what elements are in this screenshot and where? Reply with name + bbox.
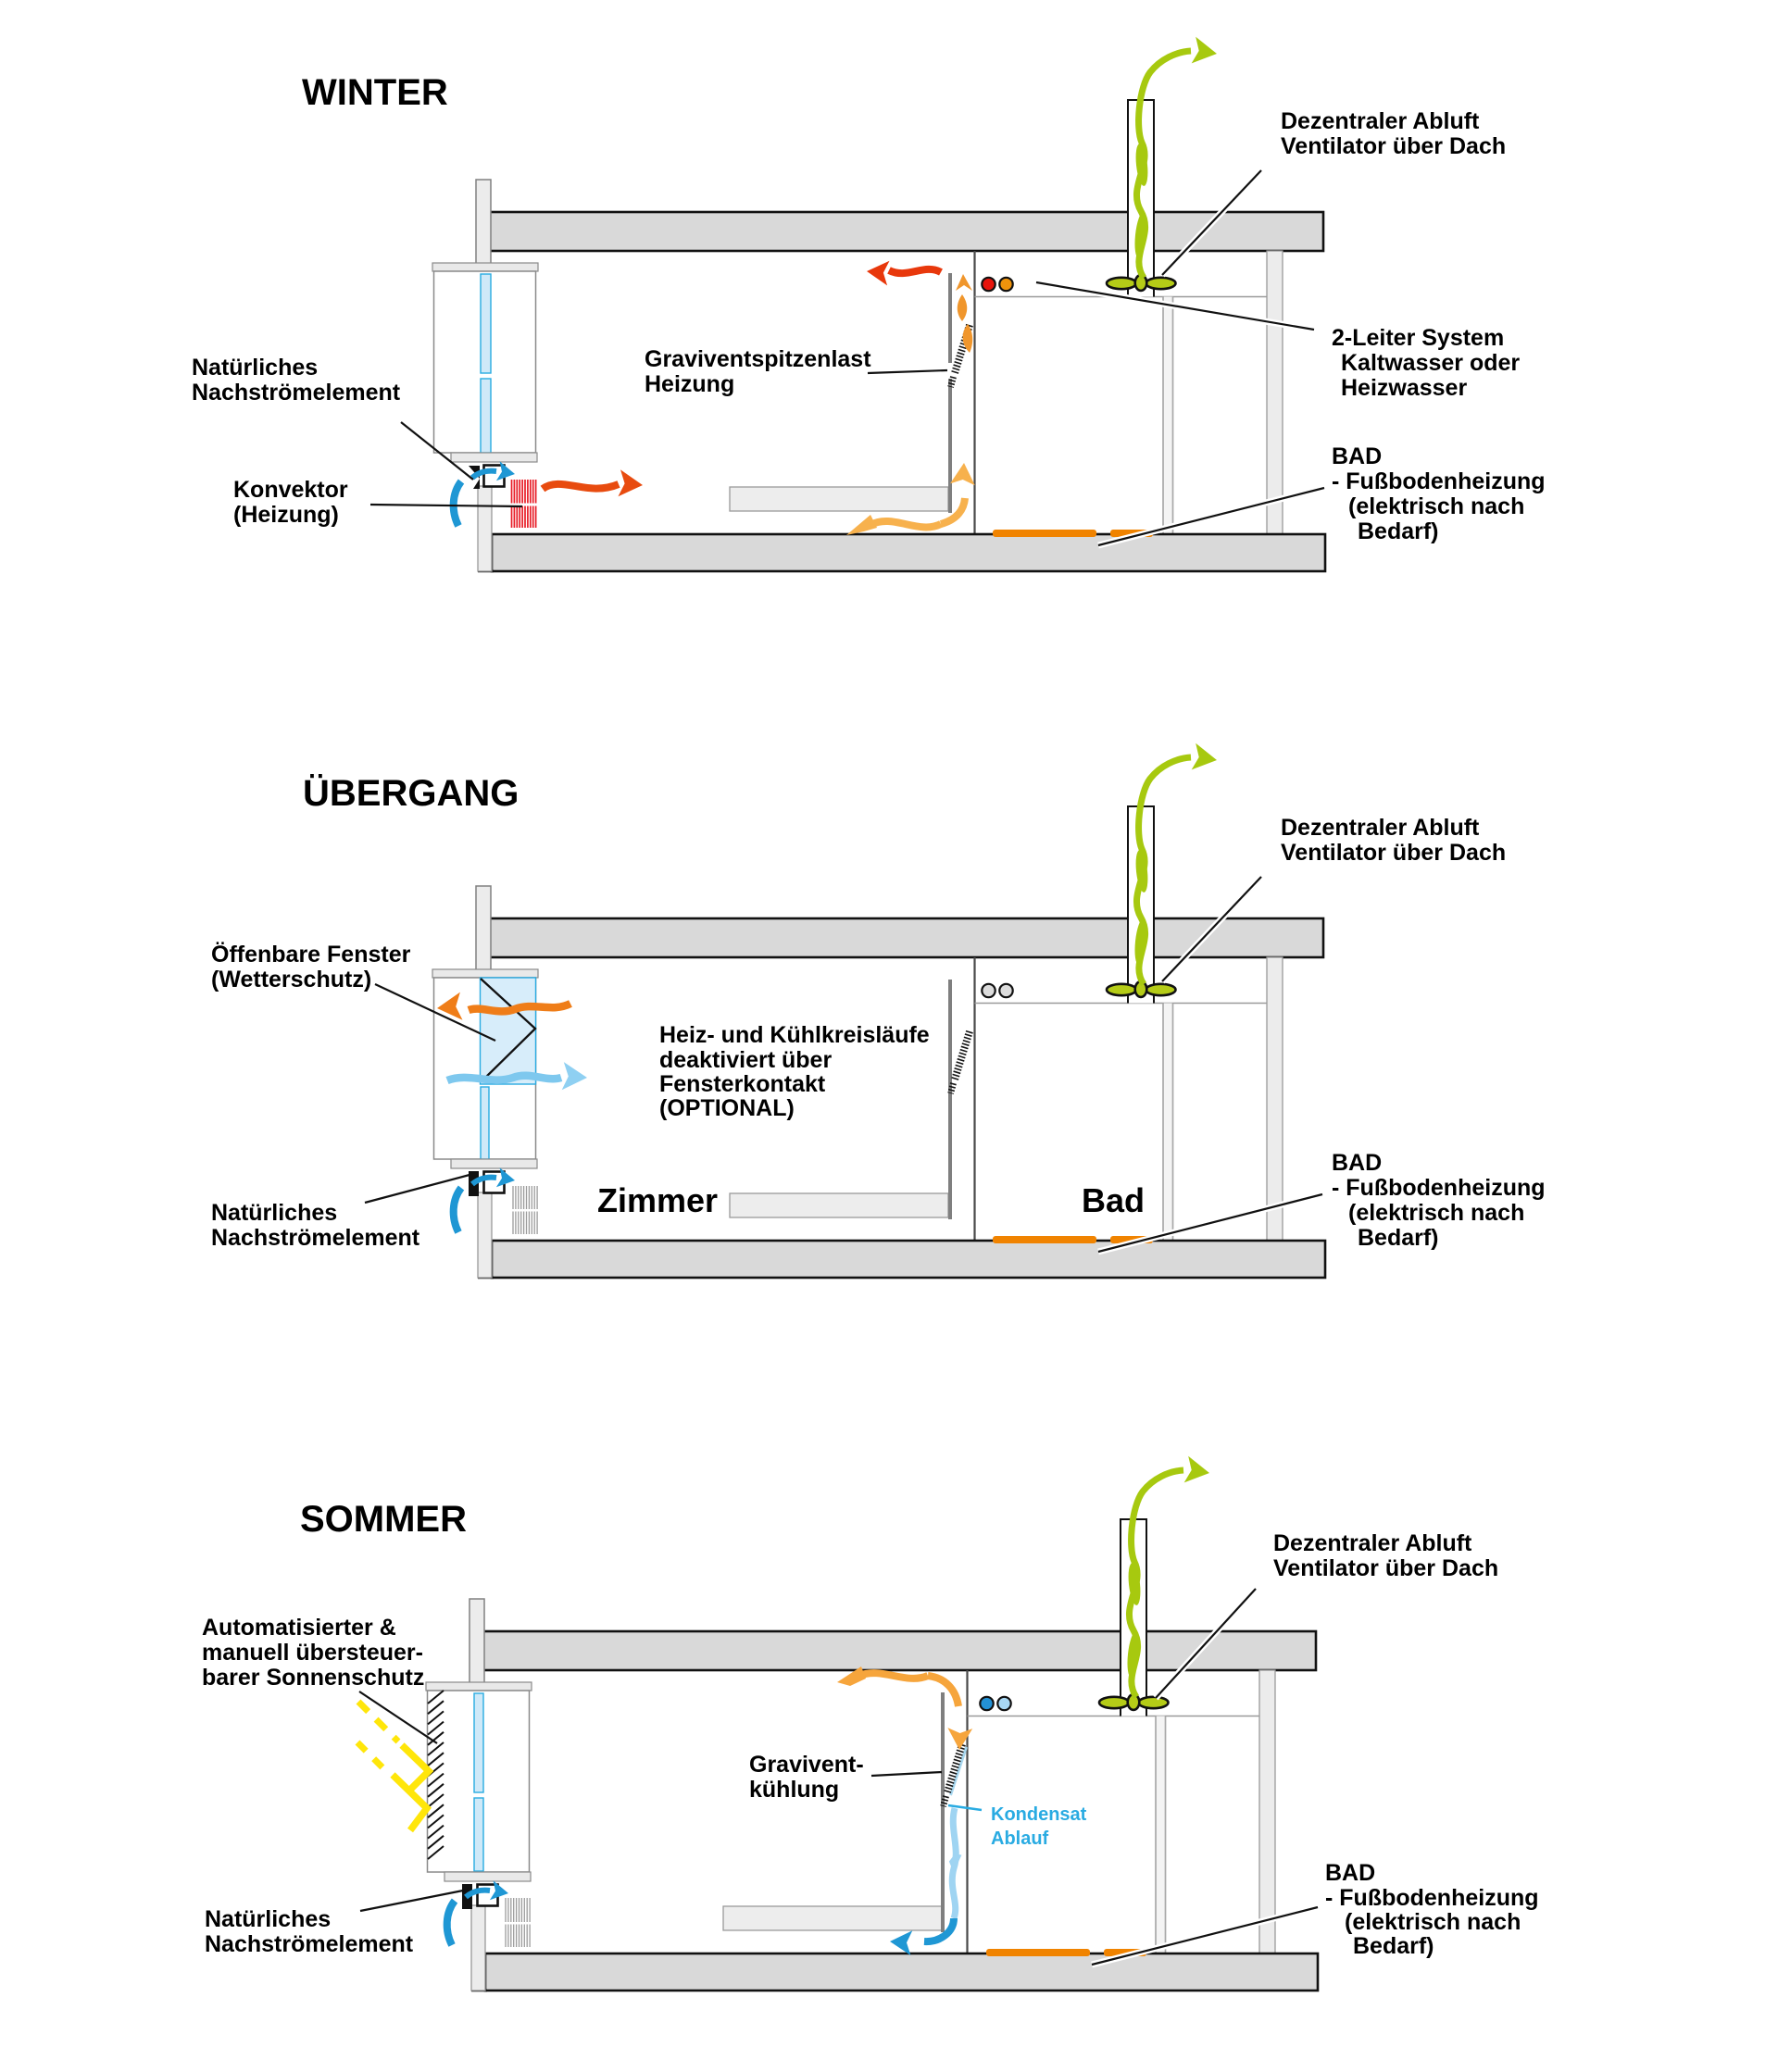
svg-text:2-Leiter System: 2-Leiter System [1332,325,1504,351]
svg-text:(elektrisch nach: (elektrisch nach [1345,1909,1521,1935]
svg-text:Fensterkontakt: Fensterkontakt [659,1071,826,1097]
svg-text:Bedarf): Bedarf) [1358,1225,1439,1251]
svg-text:- Fußbodenheizung: - Fußbodenheizung [1325,1885,1539,1911]
svg-text:SOMMER: SOMMER [300,1499,467,1540]
svg-text:Dezentraler Abluft: Dezentraler Abluft [1281,815,1480,841]
svg-text:Zimmer: Zimmer [597,1181,718,1219]
svg-text:(elektrisch nach: (elektrisch nach [1348,493,1524,519]
svg-text:Gravivent-: Gravivent- [749,1752,864,1778]
svg-text:Nachströmelement: Nachströmelement [192,380,401,406]
svg-text:Öffenbare Fenster: Öffenbare Fenster [211,941,411,967]
svg-text:- Fußbodenheizung: - Fußbodenheizung [1332,1175,1546,1201]
svg-text:barer Sonnenschutz: barer Sonnenschutz [202,1665,424,1691]
svg-text:WINTER: WINTER [302,72,448,113]
svg-text:BAD: BAD [1332,443,1382,469]
svg-text:Bad: Bad [1082,1181,1145,1219]
svg-text:Ventilator über Dach: Ventilator über Dach [1281,133,1506,159]
svg-text:(Heizung): (Heizung) [233,502,339,528]
svg-text:BAD: BAD [1325,1860,1375,1886]
svg-text:Konvektor: Konvektor [233,477,348,503]
svg-text:Kondensat: Kondensat [991,1804,1087,1825]
svg-text:Bedarf): Bedarf) [1353,1933,1434,1959]
svg-text:Ventilator über Dach: Ventilator über Dach [1281,840,1506,866]
svg-text:Nachströmelement: Nachströmelement [205,1931,414,1957]
svg-text:Heizwasser: Heizwasser [1341,375,1467,401]
svg-text:manuell übersteuer-: manuell übersteuer- [202,1640,423,1666]
svg-text:ÜBERGANG: ÜBERGANG [303,772,519,814]
svg-text:(Wetterschutz): (Wetterschutz) [211,967,371,992]
svg-text:Ablauf: Ablauf [991,1829,1049,1849]
svg-text:Automatisierter &: Automatisierter & [202,1615,396,1641]
svg-text:Bedarf): Bedarf) [1358,518,1439,544]
svg-text:Natürliches: Natürliches [211,1200,337,1226]
svg-text:(elektrisch nach: (elektrisch nach [1348,1200,1524,1226]
svg-text:Ventilator über Dach: Ventilator über Dach [1273,1555,1498,1581]
svg-text:Heizung: Heizung [645,371,734,397]
svg-text:(OPTIONAL): (OPTIONAL) [659,1095,795,1121]
svg-text:Kaltwasser oder: Kaltwasser oder [1341,350,1520,376]
svg-text:Dezentraler Abluft: Dezentraler Abluft [1281,108,1480,134]
svg-text:BAD: BAD [1332,1150,1382,1176]
svg-text:Natürliches: Natürliches [192,355,318,381]
svg-text:kühlung: kühlung [749,1777,839,1803]
svg-text:Dezentraler Abluft: Dezentraler Abluft [1273,1530,1472,1556]
svg-text:deaktiviert über: deaktiviert über [659,1047,832,1073]
svg-text:Nachströmelement: Nachströmelement [211,1225,420,1251]
svg-text:Natürliches: Natürliches [205,1906,331,1932]
svg-text:Heiz- und Kühlkreisläufe: Heiz- und Kühlkreisläufe [659,1022,930,1048]
svg-text:- Fußbodenheizung: - Fußbodenheizung [1332,468,1546,494]
svg-text:Graviventspitzenlast: Graviventspitzenlast [645,346,871,372]
